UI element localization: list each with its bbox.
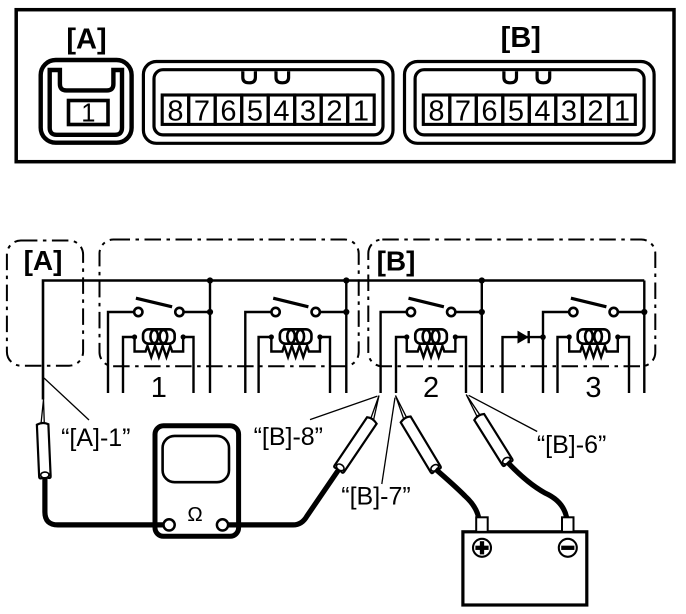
svg-text:1: 1 [614,96,630,128]
svg-text:5: 5 [508,96,524,128]
svg-text:[A]: [A] [66,24,106,56]
svg-text:3: 3 [561,96,577,128]
svg-text:2: 2 [326,96,342,128]
svg-text:“[B]-7”: “[B]-7” [341,483,410,511]
svg-text:8: 8 [428,96,444,128]
svg-text:6: 6 [481,96,497,128]
svg-text:1: 1 [151,372,167,404]
svg-text:“[B]-8”: “[B]-8” [254,423,323,451]
svg-text:2: 2 [423,372,439,404]
svg-text:[B]: [B] [377,246,416,277]
svg-text:7: 7 [455,96,471,128]
svg-text:3: 3 [300,96,316,128]
svg-text:“[B]-6”: “[B]-6” [537,431,606,459]
svg-text:5: 5 [247,96,263,128]
svg-text:[B]: [B] [501,22,541,54]
svg-text:Ω: Ω [187,503,202,526]
svg-text:8: 8 [167,96,183,128]
svg-text:3: 3 [585,372,601,404]
svg-text:6: 6 [220,96,236,128]
svg-text:[A]: [A] [24,245,63,276]
svg-text:7: 7 [194,96,210,128]
svg-text:1: 1 [353,96,369,128]
svg-text:1: 1 [81,100,95,128]
svg-text:“[A]-1”: “[A]-1” [61,424,130,452]
svg-text:2: 2 [587,96,603,128]
svg-text:4: 4 [273,96,289,128]
svg-text:4: 4 [534,96,550,128]
